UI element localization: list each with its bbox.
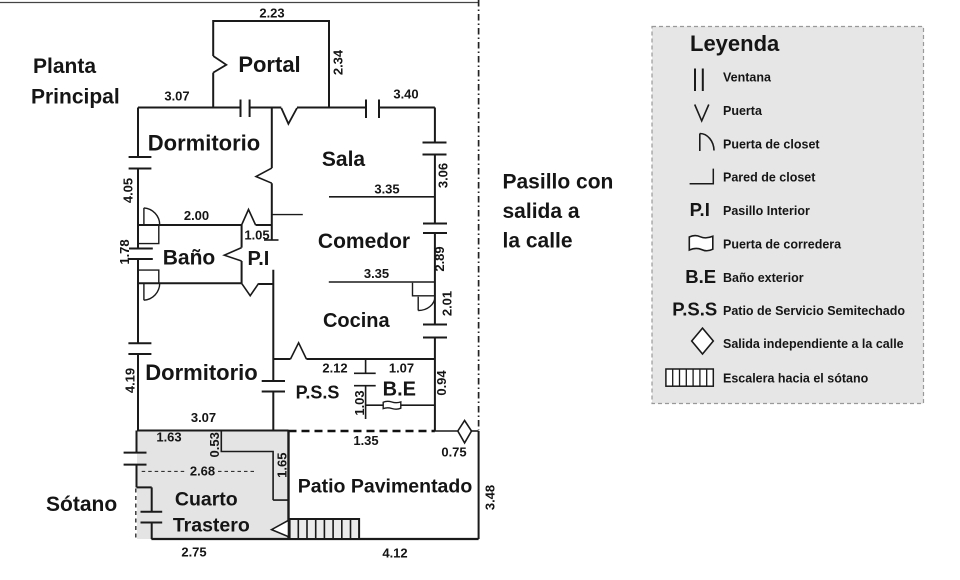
svg-text:3.48: 3.48 [483, 485, 498, 510]
svg-text:4.12: 4.12 [382, 546, 407, 561]
svg-text:2.75: 2.75 [181, 545, 206, 560]
svg-text:Escalera hacia el sótano: Escalera hacia el sótano [723, 372, 869, 386]
svg-text:4.19: 4.19 [123, 368, 138, 393]
svg-text:B.E: B.E [383, 379, 416, 401]
svg-text:0.53: 0.53 [207, 432, 222, 457]
svg-text:2.12: 2.12 [322, 361, 347, 376]
svg-text:Puerta: Puerta [723, 104, 763, 118]
svg-text:1.63: 1.63 [156, 430, 181, 445]
svg-text:3.06: 3.06 [436, 163, 451, 188]
svg-text:P.I: P.I [247, 248, 269, 270]
svg-text:3.40: 3.40 [393, 87, 418, 102]
svg-text:Puerta de corredera: Puerta de corredera [723, 238, 842, 252]
svg-text:B.E: B.E [685, 266, 716, 287]
svg-text:la calle: la calle [503, 230, 573, 253]
svg-text:2.68: 2.68 [190, 463, 215, 478]
svg-text:P.S.S: P.S.S [672, 299, 717, 320]
svg-text:2.23: 2.23 [259, 6, 284, 21]
svg-text:Planta: Planta [33, 55, 96, 78]
svg-text:Principal: Principal [31, 86, 120, 109]
svg-text:P.S.S: P.S.S [296, 383, 340, 403]
svg-text:Ventana: Ventana [723, 71, 772, 85]
svg-text:1.78: 1.78 [117, 239, 132, 264]
svg-text:Salida independiente a la call: Salida independiente a la calle [723, 337, 904, 351]
svg-text:2.00: 2.00 [184, 208, 209, 223]
svg-text:Pared de closet: Pared de closet [723, 171, 816, 185]
svg-text:Baño: Baño [163, 247, 216, 270]
svg-text:Pasillo Interior: Pasillo Interior [723, 204, 810, 218]
svg-text:3.07: 3.07 [191, 410, 216, 425]
svg-text:3.07: 3.07 [164, 89, 189, 104]
svg-text:2.01: 2.01 [440, 291, 455, 316]
svg-text:Leyenda: Leyenda [690, 31, 780, 56]
svg-text:1.65: 1.65 [275, 453, 290, 478]
svg-text:P.I: P.I [690, 199, 710, 220]
svg-text:3.35: 3.35 [364, 266, 389, 281]
svg-text:Pasillo con: Pasillo con [503, 171, 614, 194]
svg-text:2.34: 2.34 [331, 49, 346, 75]
svg-text:Comedor: Comedor [318, 230, 410, 253]
svg-text:1.07: 1.07 [389, 361, 414, 376]
svg-text:Sala: Sala [322, 148, 366, 171]
svg-text:Sótano: Sótano [46, 493, 117, 516]
svg-text:3.35: 3.35 [374, 181, 399, 196]
svg-text:salida a: salida a [503, 200, 580, 223]
svg-text:Baño exterior: Baño exterior [723, 271, 804, 285]
svg-text:0.75: 0.75 [441, 444, 466, 459]
svg-text:Cuarto: Cuarto [175, 489, 238, 511]
svg-text:Patio de Servicio Semitechado: Patio de Servicio Semitechado [723, 304, 905, 318]
svg-text:1.03: 1.03 [352, 390, 367, 415]
svg-text:1.35: 1.35 [353, 433, 378, 448]
svg-text:0.94: 0.94 [434, 370, 449, 396]
svg-text:Trastero: Trastero [173, 515, 250, 537]
svg-text:Dormitorio: Dormitorio [145, 360, 257, 385]
svg-text:Patio Pavimentado: Patio Pavimentado [298, 476, 473, 498]
svg-text:Cocina: Cocina [323, 310, 391, 332]
svg-text:2.89: 2.89 [432, 246, 447, 271]
svg-text:Portal: Portal [238, 52, 300, 77]
svg-text:Puerta de closet: Puerta de closet [723, 137, 820, 151]
svg-text:4.05: 4.05 [121, 178, 136, 203]
svg-text:Dormitorio: Dormitorio [148, 131, 260, 156]
